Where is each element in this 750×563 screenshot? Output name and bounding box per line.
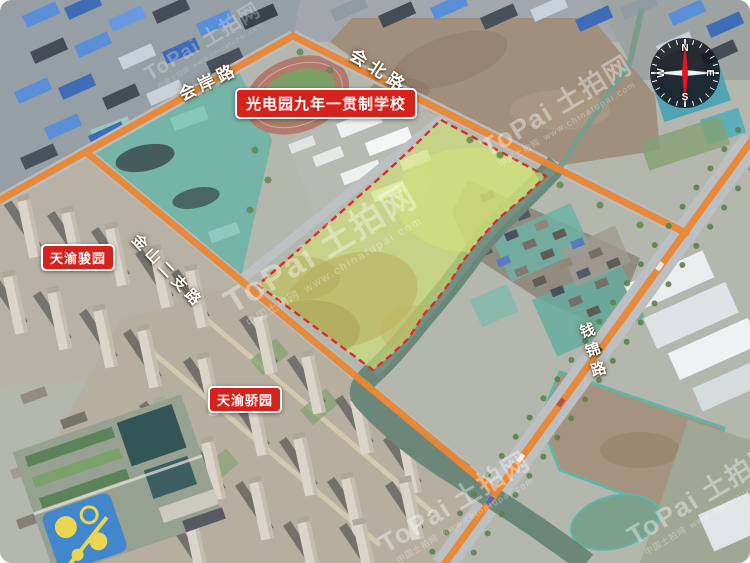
community-badge-tianyu-jiaoyuan: 天渝骄园 [208, 386, 282, 413]
community-badge-tianyu-junyuan: 天渝骏园 [41, 244, 115, 271]
compass-south-label: S [682, 92, 689, 103]
compass-west-label: W [656, 68, 667, 77]
school-badge: 光电园九年一贯制学校 [235, 88, 417, 119]
compass-north-label: N [681, 43, 688, 54]
compass-icon: N S W E [647, 35, 723, 111]
aerial-photo [0, 0, 750, 563]
aerial-map: ToPai土拍网 中国土拍网www.chinatupai.com ToPai土拍… [0, 0, 750, 563]
compass-east-label: E [704, 70, 715, 77]
